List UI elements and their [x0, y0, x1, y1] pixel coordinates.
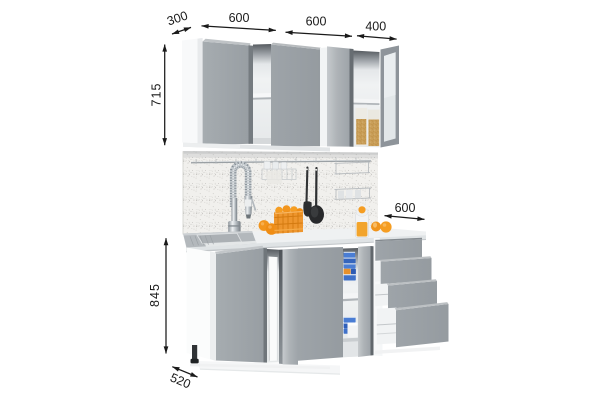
svg-text:715: 715: [150, 83, 164, 107]
svg-text:600: 600: [229, 11, 250, 25]
svg-text:600: 600: [395, 201, 416, 215]
svg-text:600: 600: [306, 15, 327, 29]
svg-text:845: 845: [148, 283, 162, 307]
svg-text:400: 400: [365, 19, 386, 33]
